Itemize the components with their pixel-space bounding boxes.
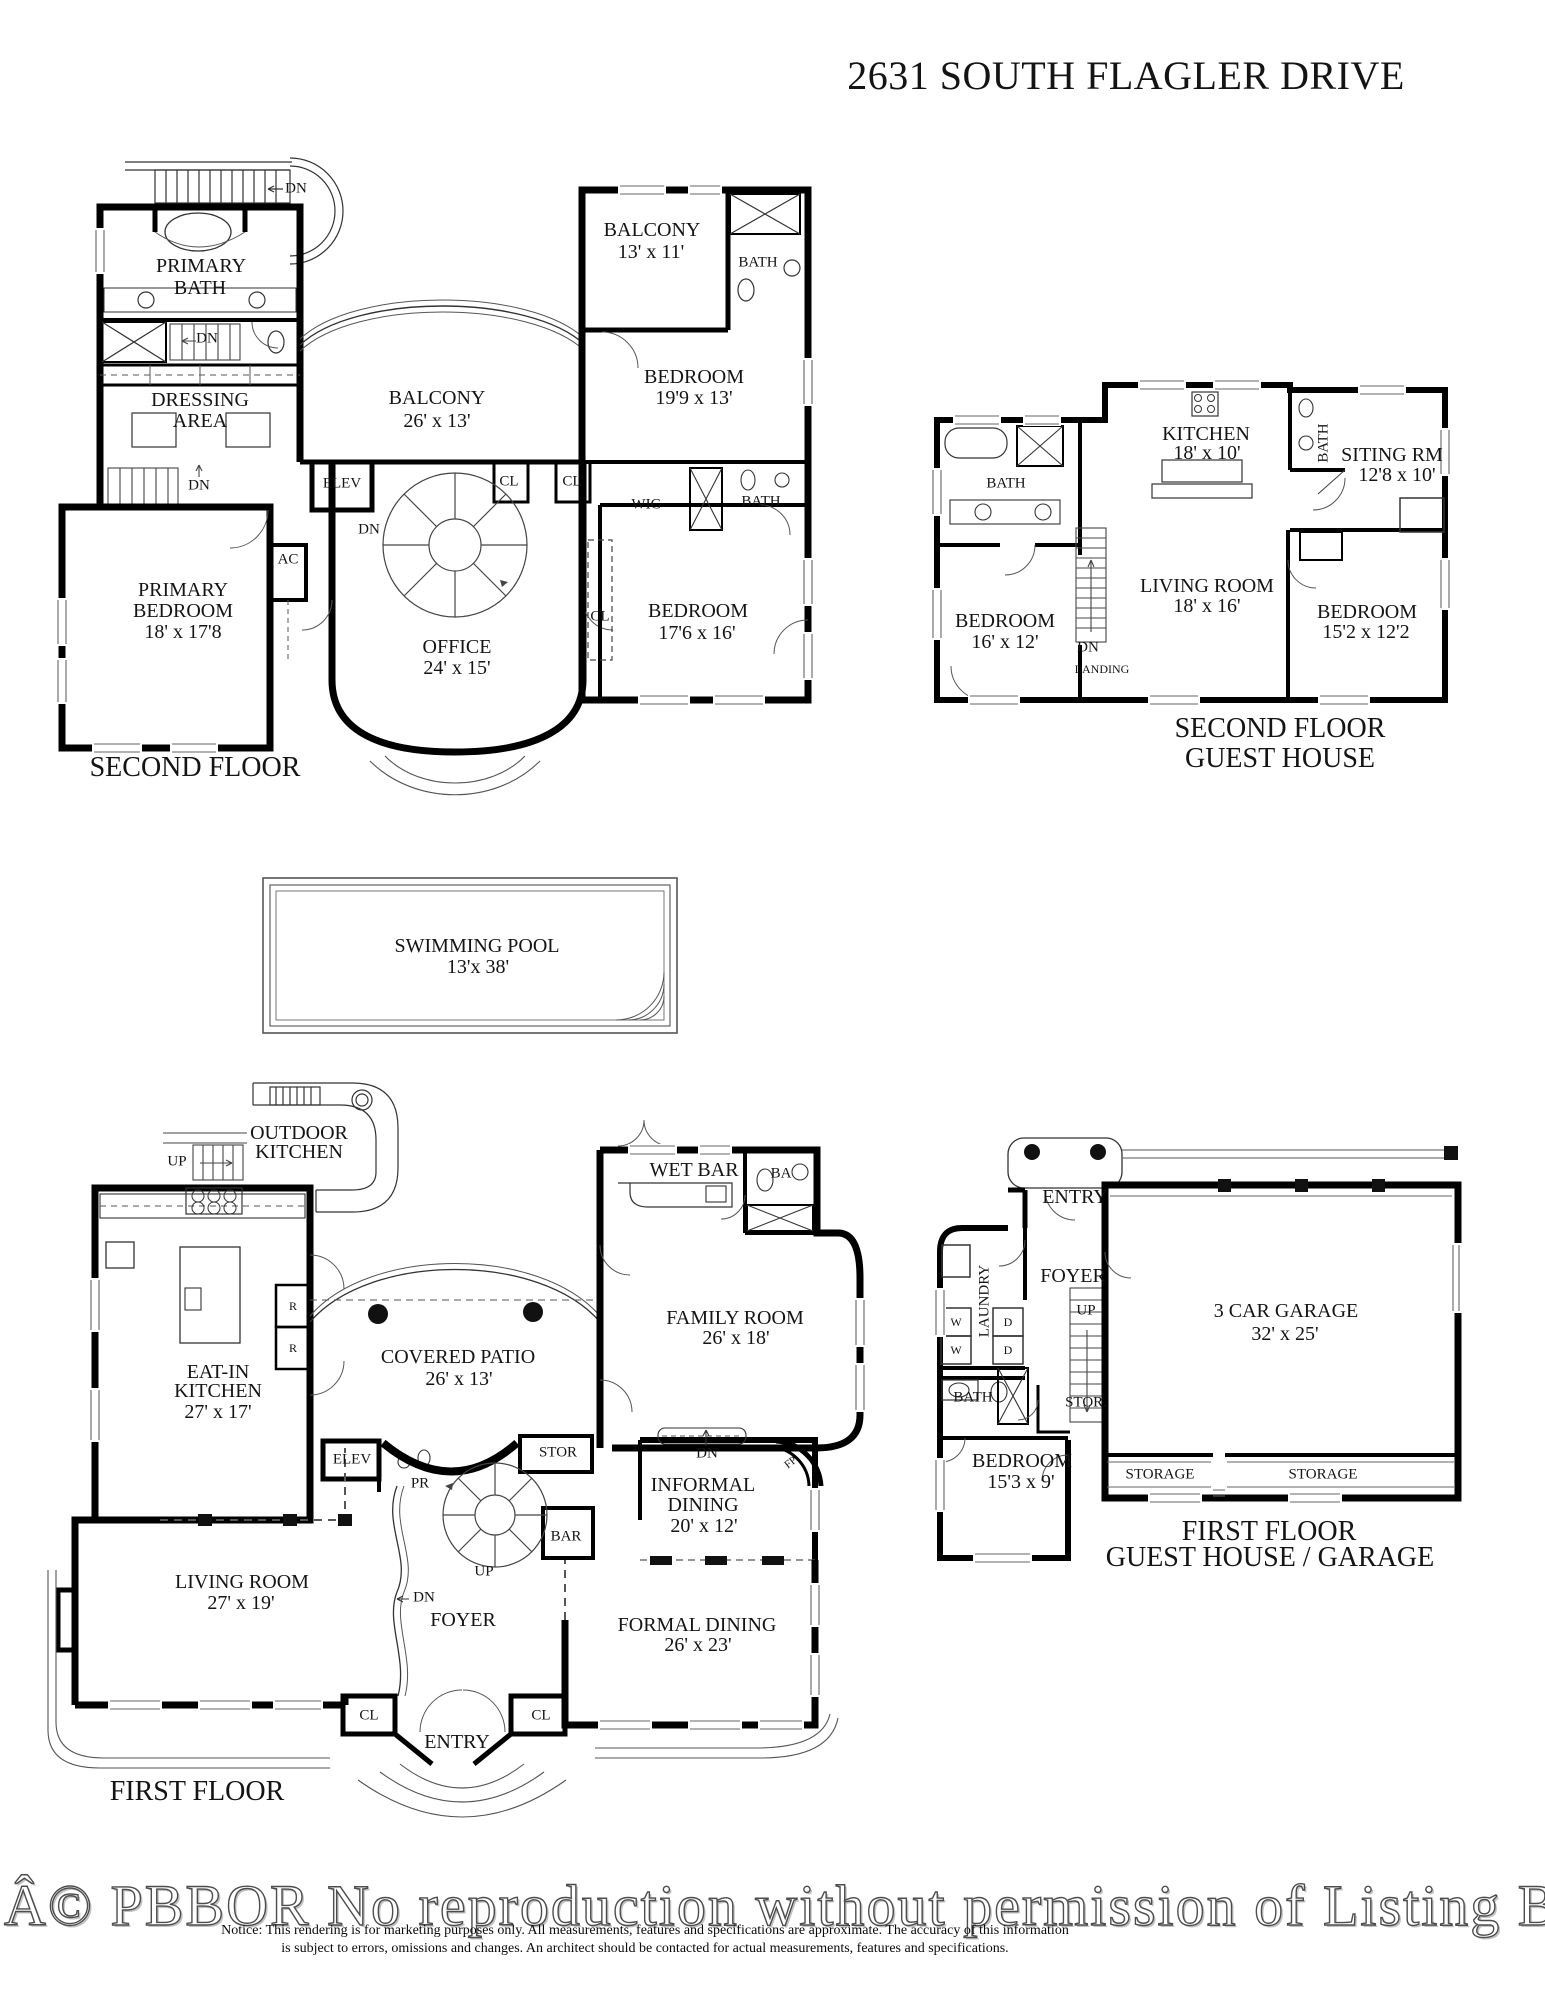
- room-dims-formal-dining: 26' x 23': [664, 1635, 731, 1655]
- room-label-outdoor-kitchen: OUTDOOR: [250, 1123, 348, 1143]
- room-dims-bedroom-se: 17'6 x 16': [658, 623, 735, 643]
- room-label-dressing: DRESSING: [151, 390, 249, 410]
- room-dims-eat-in: 27' x 17': [184, 1402, 251, 1422]
- room-dims-bedroom: 15'3 x 9': [987, 1472, 1054, 1492]
- room-label-kitchen: KITCHEN: [1162, 424, 1250, 444]
- spiral-dn-label: DN: [358, 523, 380, 538]
- stair-dn-label: DN: [188, 479, 210, 494]
- room-label-balcony-right: BALCONY: [604, 220, 701, 240]
- room-label-balcony-center: BALCONY: [389, 388, 486, 408]
- room-dims-informal-dining: 20' x 12': [670, 1516, 737, 1536]
- main-second-floor-walls: [62, 158, 808, 795]
- room-label-covered-patio: COVERED PATIO: [381, 1347, 535, 1367]
- stair-dn-label: DN: [696, 1447, 718, 1462]
- room-label-primary-bedroom: PRIMARY: [138, 580, 228, 600]
- main-first-floor-walls: [48, 1083, 860, 1817]
- closet-label: CL: [531, 1709, 550, 1724]
- stair-up-label: UP: [1076, 1304, 1095, 1319]
- dryer-label: D: [1004, 1344, 1013, 1356]
- bath-label-vertical: BATH: [1317, 423, 1332, 462]
- room-label-foyer: FOYER: [1040, 1266, 1106, 1286]
- room-label-living-room: LIVING ROOM: [175, 1572, 309, 1592]
- room-dims-garage: 32' x 25': [1251, 1324, 1318, 1344]
- ac-label: AC: [278, 553, 299, 568]
- disclaimer-line1: Notice: This rendering is for marketing …: [140, 1922, 1150, 1940]
- bar-label: BAR: [551, 1530, 582, 1545]
- room-label-eat-in: EAT-IN: [187, 1362, 250, 1382]
- washer-label: W: [950, 1344, 961, 1356]
- stair-dn-label: DN: [413, 1591, 435, 1606]
- room-label-office: OFFICE: [423, 637, 492, 657]
- room-label-garage: 3 CAR GARAGE: [1214, 1301, 1358, 1321]
- room-label-laundry: LAUNDRY: [978, 1265, 993, 1338]
- closet-label: CL: [499, 475, 518, 490]
- washer-label: W: [950, 1316, 961, 1328]
- wic-label: WIC: [631, 498, 660, 513]
- room-dims-living-room: 18' x 16': [1173, 596, 1240, 616]
- room-dims-covered-patio: 26' x 13': [425, 1369, 492, 1389]
- storage-label: STOR.: [1065, 1396, 1107, 1411]
- stair-dn-label: DN: [285, 182, 307, 197]
- floor-label-first-floor: FIRST FLOOR: [110, 1778, 285, 1806]
- closet-label: CL: [359, 1709, 378, 1724]
- room-label-foyer: FOYER: [430, 1610, 496, 1630]
- room-label-primary-bath-2: BATH: [174, 278, 226, 298]
- room-label-informal-dining-2: DINING: [667, 1495, 738, 1515]
- room-label-primary-bedroom-2: BEDROOM: [133, 601, 233, 621]
- bath-label: BATH: [953, 1391, 992, 1406]
- room-dims-balcony-center: 26' x 13': [403, 411, 470, 431]
- room-label-primary-bath: PRIMARY: [156, 256, 246, 276]
- entry-label: ENTRY: [1042, 1187, 1108, 1207]
- refrigerator-label: R: [289, 1342, 297, 1354]
- room-label-living-room: LIVING ROOM: [1140, 576, 1274, 596]
- room-label-informal-dining: INFORMAL: [651, 1475, 755, 1495]
- ba-label: BA: [771, 1167, 792, 1182]
- stair-up-label: UP: [474, 1565, 493, 1580]
- storage-label: STORAGE: [1126, 1468, 1195, 1483]
- room-label-bedroom-se: BEDROOM: [648, 601, 748, 621]
- room-dims-bedroom-ne: 19'9 x 13': [655, 388, 732, 408]
- bath-label: BATH: [738, 256, 777, 271]
- closet-label: CL: [562, 475, 581, 490]
- floor-label-guest-second-1: SECOND FLOOR: [1175, 715, 1386, 743]
- room-dims-family-room: 26' x 18': [702, 1328, 769, 1348]
- floorplan-linework: [0, 0, 1545, 2000]
- room-label-outdoor-kitchen-2: KITCHEN: [255, 1142, 343, 1162]
- room-label-wet-bar: WET BAR: [649, 1160, 738, 1180]
- floorplan-page: { "title": "2631 SOUTH FLAGLER DRIVE", "…: [0, 0, 1545, 2000]
- floor-label-guest-second-2: GUEST HOUSE: [1185, 745, 1375, 773]
- dryer-label: D: [1004, 1316, 1013, 1328]
- page-title: 2631 SOUTH FLAGLER DRIVE: [847, 56, 1405, 96]
- pool-label: SWIMMING POOL: [395, 936, 560, 956]
- room-dims-living-room: 27' x 19': [207, 1593, 274, 1613]
- pool-dims: 13'x 38': [447, 957, 509, 977]
- elev-label: ELEV: [333, 1453, 371, 1468]
- floor-label-second-floor: SECOND FLOOR: [90, 754, 301, 782]
- room-label-family-room: FAMILY ROOM: [666, 1308, 803, 1328]
- disclaimer-line2: is subject to errors, omissions and chan…: [140, 1940, 1150, 1958]
- stair-up-label: UP: [167, 1155, 186, 1170]
- room-label-bedroom-left: BEDROOM: [955, 611, 1055, 631]
- room-dims-bedroom-left: 16' x 12': [971, 632, 1038, 652]
- room-label-bedroom-ne: BEDROOM: [644, 367, 744, 387]
- room-label-bedroom-right: BEDROOM: [1317, 602, 1417, 622]
- room-label-siting-rm: SITING RM: [1341, 445, 1443, 465]
- floor-label-guest-first-2: GUEST HOUSE / GARAGE: [1106, 1544, 1435, 1572]
- room-label-eat-in-2: KITCHEN: [174, 1381, 262, 1401]
- disclaimer-notice: Notice: This rendering is for marketing …: [140, 1922, 1150, 1958]
- powder-room-label: PR: [411, 1477, 429, 1492]
- storage-label: STOR: [539, 1446, 577, 1461]
- room-dims-primary-bedroom: 18' x 17'8: [144, 622, 221, 642]
- closet-label: CL: [590, 610, 609, 625]
- room-label-formal-dining: FORMAL DINING: [618, 1615, 777, 1635]
- entry-label: ENTRY: [424, 1732, 490, 1752]
- room-dims-office: 24' x 15': [423, 658, 490, 678]
- elev-label: ELEV: [323, 477, 361, 492]
- refrigerator-label: R: [289, 1300, 297, 1312]
- bath-label: BATH: [986, 477, 1025, 492]
- room-dims-bedroom-right: 15'2 x 12'2: [1322, 622, 1409, 642]
- stair-dn-label: DN: [196, 332, 218, 347]
- room-dims-siting-rm: 12'8 x 10': [1358, 465, 1435, 485]
- landing-label: LANDING: [1075, 663, 1130, 675]
- stair-dn-label: DN: [1077, 641, 1099, 656]
- storage-label: STORAGE: [1289, 1468, 1358, 1483]
- room-dims-kitchen: 18' x 10': [1173, 443, 1240, 463]
- room-dims-balcony-right: 13' x 11': [618, 242, 684, 262]
- room-label-dressing-2: AREA: [173, 411, 227, 431]
- bath-label: BATH: [741, 495, 780, 510]
- room-label-bedroom: BEDROOM: [972, 1451, 1072, 1471]
